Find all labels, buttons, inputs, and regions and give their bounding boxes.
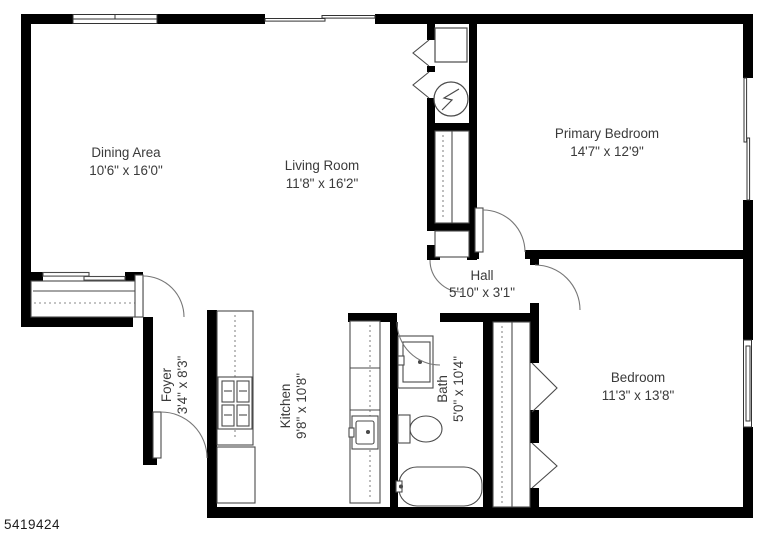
refrigerator-icon <box>217 447 255 503</box>
primary-bedroom-door-icon <box>475 208 525 252</box>
bifold-door-icon <box>532 363 557 412</box>
primary-bedroom-label: Primary Bedroom <box>555 126 659 141</box>
foyer-label: Foyer <box>159 367 174 402</box>
interior-walls <box>31 24 753 507</box>
exterior-walls <box>21 14 753 518</box>
dining-area-label: Dining Area <box>91 145 161 160</box>
bedroom-window-icon <box>744 340 752 427</box>
front-door-icon <box>153 412 207 458</box>
bifold-door-icon <box>413 40 429 66</box>
floor-plan-page: Dining Area 10'6" x 16'0" Living Room 11… <box>0 0 768 540</box>
laundry-area <box>434 28 468 116</box>
linen-closet <box>435 231 469 257</box>
hall-closet <box>435 131 469 223</box>
dining-window-icon <box>73 15 157 24</box>
bath-fixtures <box>396 336 482 506</box>
kitchen-dims: 9'8" x 10'8" <box>294 373 309 439</box>
toilet-icon <box>398 415 442 443</box>
sliding-door-icon <box>43 273 89 277</box>
floor-plan-svg: Dining Area 10'6" x 16'0" Living Room 11… <box>0 0 768 540</box>
kitchen-counter <box>350 321 380 503</box>
primary-bedroom-window-icon <box>744 78 750 200</box>
bifold-door-icon <box>413 72 429 98</box>
bedroom-label: Bedroom <box>611 370 665 385</box>
bathtub-icon <box>396 467 482 506</box>
entry-closet-area-door-icon <box>135 275 184 317</box>
room-labels: Dining Area 10'6" x 16'0" Living Room 11… <box>89 126 674 439</box>
dining-area-dims: 10'6" x 16'0" <box>89 163 163 178</box>
living-room-window-icon <box>265 16 375 22</box>
bath-label: Bath <box>435 375 450 403</box>
bedroom-door-icon <box>535 265 580 310</box>
foyer-dims: 3'4" x 8'3" <box>175 355 190 414</box>
hall-dims: 5'10" x 3'1" <box>449 285 515 300</box>
living-room-label: Living Room <box>285 158 359 173</box>
bedroom-closet <box>493 322 557 507</box>
primary-bedroom-dims: 14'7" x 12'9" <box>570 144 644 159</box>
sliding-door-icon <box>84 277 125 281</box>
kitchen-label: Kitchen <box>278 384 293 429</box>
hall-label: Hall <box>470 268 493 283</box>
stove-icon <box>218 377 252 429</box>
bifold-door-icon <box>532 443 557 488</box>
listing-id: 5419424 <box>4 517 60 532</box>
washer-icon <box>435 28 467 62</box>
dryer-icon <box>434 82 468 116</box>
bath-dims: 5'0" x 10'4" <box>451 356 466 422</box>
laundry-closet-doors <box>413 40 429 98</box>
living-room-dims: 11'8" x 16'2" <box>286 176 359 191</box>
bedroom-dims: 11'3" x 13'8" <box>602 388 675 403</box>
kitchen-sink-icon <box>349 416 378 449</box>
